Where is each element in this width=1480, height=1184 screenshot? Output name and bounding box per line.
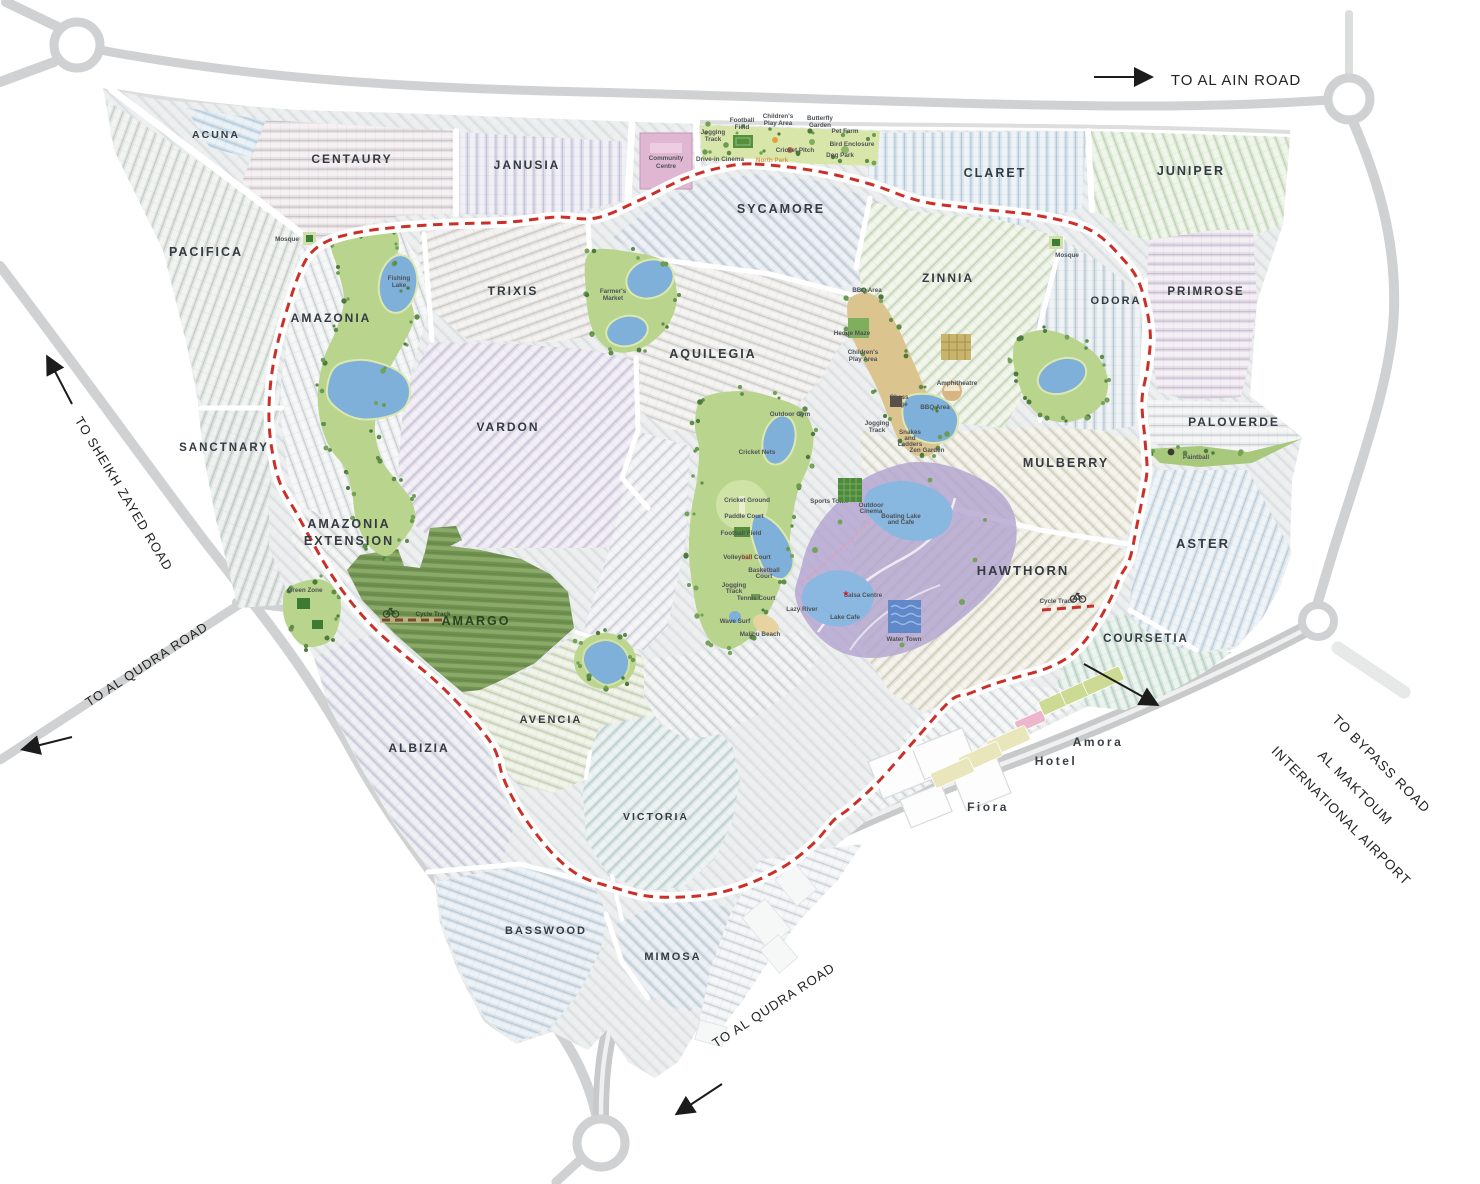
svg-text:Play Area: Play Area: [849, 356, 878, 363]
svg-text:Cricket Ground: Cricket Ground: [724, 497, 770, 504]
svg-text:Market: Market: [603, 295, 624, 302]
svg-text:PALOVERDE: PALOVERDE: [1188, 415, 1280, 429]
svg-text:ODORA: ODORA: [1091, 295, 1142, 307]
svg-text:Lazy River: Lazy River: [786, 606, 818, 613]
svg-text:Outdoor Gym: Outdoor Gym: [770, 411, 811, 418]
svg-text:Garden: Garden: [809, 122, 831, 129]
svg-text:Malibu Beach: Malibu Beach: [740, 631, 781, 638]
svg-text:Community: Community: [649, 155, 684, 162]
svg-text:CENTAURY: CENTAURY: [311, 152, 392, 166]
svg-text:Wave Surf: Wave Surf: [720, 618, 751, 625]
svg-text:Amphitheatre: Amphitheatre: [937, 380, 978, 387]
svg-text:PACIFICA: PACIFICA: [169, 245, 243, 259]
svg-text:Cricket Nets: Cricket Nets: [739, 449, 776, 456]
svg-text:Cycle Track: Cycle Track: [415, 611, 451, 618]
svg-text:Cricket Pitch: Cricket Pitch: [776, 147, 815, 154]
svg-text:BASSWOOD: BASSWOOD: [505, 925, 587, 937]
svg-text:Butterfly: Butterfly: [807, 115, 833, 122]
svg-text:Fishing: Fishing: [388, 275, 411, 282]
svg-text:EXTENSION: EXTENSION: [304, 534, 394, 548]
svg-text:HAWTHORN: HAWTHORN: [977, 563, 1070, 578]
svg-text:ALBIZIA: ALBIZIA: [388, 741, 449, 755]
svg-text:Mosque: Mosque: [1055, 252, 1079, 259]
svg-text:Track: Track: [726, 588, 743, 595]
svg-text:Zen Garden: Zen Garden: [910, 447, 945, 454]
svg-text:ACUNA: ACUNA: [192, 129, 240, 141]
svg-text:Paddle Court: Paddle Court: [724, 513, 764, 520]
svg-text:Fiora: Fiora: [967, 800, 1009, 814]
svg-text:Stage: Stage: [890, 401, 908, 408]
svg-text:Lake Cafe: Lake Cafe: [830, 614, 860, 621]
svg-text:Jogging: Jogging: [865, 420, 890, 427]
svg-text:Salsa Centre: Salsa Centre: [844, 592, 883, 599]
svg-text:PRIMROSE: PRIMROSE: [1167, 286, 1244, 298]
svg-text:Children's: Children's: [848, 349, 879, 356]
svg-text:AMAZONIA: AMAZONIA: [291, 311, 372, 325]
svg-text:Water Town: Water Town: [887, 636, 922, 643]
svg-text:ZINNIA: ZINNIA: [922, 271, 974, 285]
svg-text:TO AL AIN ROAD: TO AL AIN ROAD: [1171, 72, 1301, 89]
svg-text:CLARET: CLARET: [964, 166, 1027, 180]
svg-text:Children's: Children's: [763, 113, 794, 120]
svg-text:Bird Enclosure: Bird Enclosure: [830, 141, 875, 148]
svg-text:COURSETIA: COURSETIA: [1103, 633, 1189, 645]
svg-text:SYCAMORE: SYCAMORE: [737, 202, 825, 216]
svg-text:AMARGO: AMARGO: [442, 614, 511, 628]
svg-text:Field: Field: [735, 124, 750, 131]
svg-text:Cinema: Cinema: [860, 508, 883, 515]
svg-text:Mosque: Mosque: [275, 236, 299, 243]
svg-text:VICTORIA: VICTORIA: [623, 811, 689, 823]
svg-text:Dog Park: Dog Park: [826, 152, 854, 159]
svg-text:Green Zone: Green Zone: [288, 587, 323, 594]
svg-text:MULBERRY: MULBERRY: [1023, 456, 1109, 470]
svg-text:BBQ Area: BBQ Area: [852, 287, 882, 294]
svg-text:Football Field: Football Field: [721, 530, 762, 537]
svg-text:Court: Court: [756, 573, 774, 580]
svg-text:Pet Farm: Pet Farm: [832, 128, 859, 135]
svg-text:Farmer's: Farmer's: [600, 288, 627, 295]
svg-text:North Park: North Park: [756, 157, 789, 164]
svg-text:Hedge Maze: Hedge Maze: [834, 330, 871, 337]
svg-text:★: ★: [842, 589, 849, 598]
svg-text:AVENCIA: AVENCIA: [520, 714, 583, 726]
svg-text:Jogging: Jogging: [701, 129, 726, 136]
svg-text:BBQ Area: BBQ Area: [920, 404, 950, 411]
svg-text:Lake: Lake: [392, 282, 407, 289]
svg-text:AQUILEGIA: AQUILEGIA: [669, 347, 756, 361]
svg-text:Paintball: Paintball: [1183, 454, 1209, 461]
svg-text:Tennis Court: Tennis Court: [737, 595, 776, 602]
svg-text:Chess: Chess: [890, 394, 909, 401]
svg-text:Track: Track: [705, 136, 722, 143]
svg-text:MIMOSA: MIMOSA: [644, 951, 701, 963]
svg-text:JANUSIA: JANUSIA: [494, 158, 561, 172]
svg-text:Play Area: Play Area: [764, 120, 793, 127]
svg-text:Track: Track: [869, 427, 886, 434]
svg-text:Volleyball Court: Volleyball Court: [723, 554, 771, 561]
svg-text:ASTER: ASTER: [1176, 536, 1230, 551]
svg-text:JUNIPER: JUNIPER: [1157, 164, 1225, 178]
svg-text:Hotel: Hotel: [1035, 754, 1078, 768]
svg-text:Centre: Centre: [656, 163, 676, 170]
svg-text:TRIXIS: TRIXIS: [488, 284, 539, 298]
svg-text:AMAZONIA: AMAZONIA: [307, 517, 390, 531]
svg-text:Drive-in Cinema: Drive-in Cinema: [696, 156, 744, 163]
svg-text:Amora: Amora: [1073, 735, 1124, 749]
svg-text:Cycle Track: Cycle Track: [1039, 598, 1075, 605]
svg-text:VARDON: VARDON: [476, 420, 539, 434]
svg-text:SANCTNARY: SANCTNARY: [179, 442, 269, 454]
svg-text:and Cafe: and Cafe: [888, 519, 915, 526]
svg-text:Football: Football: [730, 117, 755, 124]
